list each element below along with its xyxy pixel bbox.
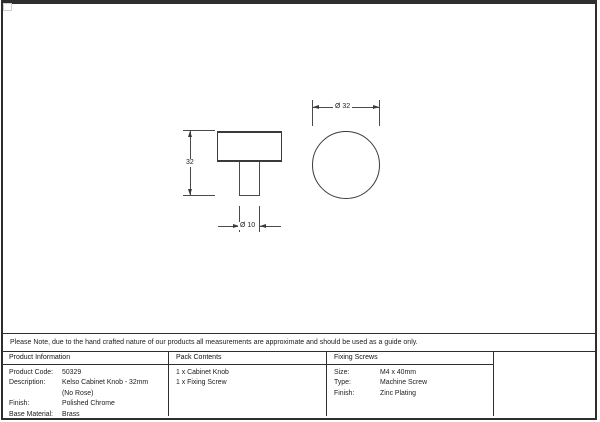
pack-item: 1 x Cabinet Knob <box>176 368 326 378</box>
stem-ext-line-right <box>259 206 260 232</box>
description-row: Description: Kelso Cabinet Knob - 32mm (… <box>9 378 168 399</box>
screw-finish-row: Finish: Zinc Plating <box>334 389 493 399</box>
pack-item: 1 x Fixing Screw <box>176 378 326 388</box>
knob-face-circle <box>312 131 380 199</box>
product-information-header: Product Information <box>2 352 168 365</box>
screw-type-row: Type: Machine Screw <box>334 378 493 388</box>
stem-dim-arrow-left-icon <box>260 224 266 228</box>
description-value: Kelso Cabinet Knob - 32mm (No Rose) <box>62 378 148 399</box>
height-dim-label: 32 <box>184 159 196 167</box>
description-value-line1: Kelso Cabinet Knob - 32mm <box>62 378 148 388</box>
screw-size-label: Size: <box>334 368 380 378</box>
fixing-screws-header: Fixing Screws <box>327 352 493 365</box>
finish-label: Finish: <box>9 399 62 409</box>
screw-size-value: M4 x 40mm <box>380 368 416 378</box>
fixing-screws-column: Fixing Screws Size: M4 x 40mm Type: Mach… <box>327 352 494 416</box>
description-label: Description: <box>9 378 62 399</box>
note-text: Please Note, due to the hand crafted nat… <box>10 339 418 346</box>
screw-type-label: Type: <box>334 378 380 388</box>
circle-ext-line-left <box>312 100 313 126</box>
screw-finish-label: Finish: <box>334 389 380 399</box>
circle-dim-arrow-right-icon <box>373 105 379 109</box>
product-code-label: Product Code: <box>9 368 62 378</box>
knob-stem-outline <box>239 162 260 196</box>
screw-type-value: Machine Screw <box>380 378 427 388</box>
base-material-label: Base Material: <box>9 410 62 420</box>
description-value-line2: (No Rose) <box>62 389 148 399</box>
circle-ext-line-right <box>379 100 380 126</box>
product-information-column: Product Information Product Code: 50329 … <box>2 352 169 416</box>
dim-ext-line-bottom <box>183 195 215 196</box>
dim-arrow-down-icon <box>188 189 192 195</box>
finish-row: Finish: Polished Chrome <box>9 399 168 409</box>
circle-dim-arrow-left-icon <box>313 105 319 109</box>
base-material-row: Base Material: Brass <box>9 410 168 420</box>
base-material-value: Brass <box>62 410 80 420</box>
pack-contents-column: Pack Contents 1 x Cabinet Knob 1 x Fixin… <box>169 352 327 416</box>
logo-column: From the nvil ® www.fromtheanvil.co.uk <box>494 352 597 416</box>
finish-value: Polished Chrome <box>62 399 115 409</box>
product-code-value: 50329 <box>62 368 81 378</box>
spec-sheet: 32 Ø 10 Ø 32 Please Note, due to the han… <box>0 0 600 422</box>
stem-dim-label: Ø 10 <box>238 222 257 230</box>
corner-registration-mark <box>3 3 12 11</box>
dim-arrow-up-icon <box>188 131 192 137</box>
product-code-row: Product Code: 50329 <box>9 368 168 378</box>
screw-size-row: Size: M4 x 40mm <box>334 368 493 378</box>
screw-finish-value: Zinc Plating <box>380 389 416 399</box>
pack-contents-header: Pack Contents <box>169 352 326 365</box>
knob-head-outline <box>217 131 282 162</box>
note-row: Please Note, due to the hand crafted nat… <box>2 333 597 352</box>
circle-dim-label: Ø 32 <box>333 103 352 111</box>
